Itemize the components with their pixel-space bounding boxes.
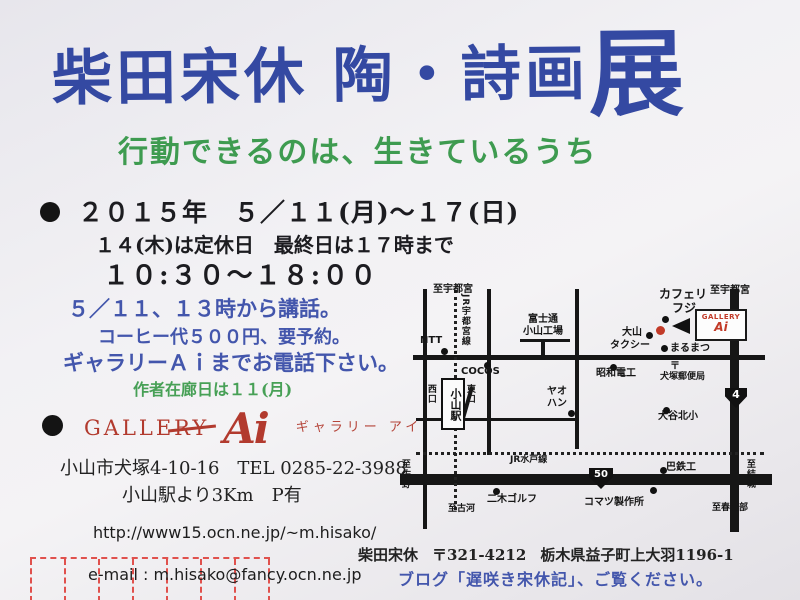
coffee-fee-note: コーヒー代５００円、要予約。	[98, 323, 350, 349]
marumatsu-dot	[661, 345, 668, 352]
map-label-yaohan-1: ヤオ	[547, 386, 567, 397]
map-label-oyama-taxi-1: 大山	[622, 327, 642, 338]
reservation-phone-note: ギャラリーＡｉまでお電話下さい。	[63, 347, 399, 377]
exhibition-dates: ２０１５年 ５／１１(月)～１７(日)	[78, 193, 519, 229]
fujitsu-sign-stem	[541, 339, 545, 358]
artist-address: 栃木県益子町上大羽1196-1	[540, 546, 733, 564]
route50-shield: 50	[589, 468, 613, 489]
yaohan-dot	[568, 410, 575, 417]
gallery-pointer-arrow	[672, 318, 690, 334]
map-label-oya-kita-school: 大谷北小	[658, 411, 698, 422]
map-label-to-utsunomiya-east: 至宇都宮	[710, 285, 750, 296]
oyama-station-box: 小山駅	[441, 378, 465, 430]
exhibition-title: 柴田宋休 陶・詩画展	[51, 23, 684, 134]
map-road-vertical-center	[575, 289, 579, 449]
jr-mito-line	[416, 452, 764, 455]
gallery-location-marker	[656, 326, 665, 335]
map-label-to-yuki: 至結城	[744, 459, 754, 489]
map-label-tomoe-tekko: 巴鉄工	[666, 462, 696, 473]
gallery-logo: GALLERYAiギャラリー アイ	[84, 404, 422, 453]
website-url: http://www15.ocn.ne.jp/~m.hisako/	[93, 523, 376, 542]
exhibition-title-main: 柴田宋休 陶・詩画	[52, 39, 590, 115]
oyama-taxi-dot	[646, 332, 653, 339]
map-label-inuzuka-post-office: 犬塚郵便局	[660, 373, 705, 383]
map-label-jr-utsunomiya-line: JR宇都宮線	[459, 294, 469, 346]
bullet-dot-schedule	[40, 202, 60, 222]
talk-event-note: ５／１１、１３時から講話。	[68, 293, 341, 323]
map-label-west-exit: 西口	[425, 384, 435, 404]
map-label-ntt: NTT	[420, 335, 442, 346]
map-road-horizontal-main	[413, 355, 765, 360]
gallery-name-katakana: ギャラリー アイ	[296, 420, 422, 435]
map-label-fuji: フジ	[672, 302, 696, 315]
map-road-horizontal-station	[416, 418, 576, 421]
map-label-to-koga: 至古河	[448, 505, 475, 515]
gallery-access-note: 小山駅より3Km P有	[122, 481, 302, 507]
closed-day-note: １４(木)は定休日 最終日は１７時まで	[95, 229, 454, 258]
ntt-dot	[441, 348, 448, 355]
access-map: 小山駅 GALLERYAi 4 50 至宇都宮 JR宇都宮線 NTT 富士通 小…	[408, 282, 770, 535]
jr-utsunomiya-line-upper	[454, 290, 457, 378]
artist-postal-code: 〒321-4212	[432, 546, 526, 564]
fujitsu-sign-underline	[520, 339, 570, 342]
opening-hours: １０:３０～１８:００	[103, 255, 378, 292]
map-label-marumatsu: まるまつ	[670, 343, 710, 354]
exhibition-title-last-char: 展	[588, 19, 684, 131]
gallery-address-phone: 小山市犬塚4-10-16 TEL 0285-22-3988	[60, 454, 407, 480]
exhibition-postcard: 柴田宋休 陶・詩画展 行動できるのは、生きているうち ２０１５年 ５／１１(月)…	[0, 0, 800, 600]
route4-shield: 4	[725, 388, 747, 408]
bullet-dot-gallery	[42, 415, 63, 436]
map-label-komatsu: コマツ製作所	[584, 497, 644, 508]
exhibition-subtitle: 行動できるのは、生きているうち	[118, 127, 597, 171]
gallery-ai-script-logo: Ai	[223, 404, 268, 453]
cafe-fuji-dot	[662, 316, 669, 323]
map-label-jr-mito-line: JR水戸線	[510, 456, 547, 466]
gallery-map-box-ai: Ai	[697, 321, 745, 333]
komatsu-dot	[650, 487, 657, 494]
map-label-fujitsu: 富士通	[528, 314, 558, 325]
map-road-vertical-west	[423, 289, 427, 529]
gallery-map-box: GALLERYAi	[695, 309, 747, 341]
map-label-to-kasukabe: 至春日部	[712, 504, 748, 514]
map-label-cafe: カフェリ	[659, 288, 707, 301]
artist-name: 柴田宋休	[358, 546, 418, 564]
map-label-niki-golf: 二木ゴルフ	[487, 494, 537, 505]
blog-announcement: ブログ「遅咲き宋休記」、ご覧ください。	[398, 566, 713, 590]
map-label-yaohan-2: ハン	[547, 398, 567, 409]
map-label-to-sano: 至佐野	[399, 459, 409, 489]
email-address: e-mail : m.hisako@fancy.ocn.ne.jp	[88, 565, 361, 584]
artist-address-line: 柴田宋休〒321-4212栃木県益子町上大羽1196-1	[358, 544, 748, 565]
jr-utsunomiya-line-lower	[454, 428, 457, 510]
map-label-oyama-plant: 小山工場	[523, 326, 563, 337]
map-label-showa-denko: 昭和電工	[596, 368, 636, 379]
map-label-cocos: COCOS	[461, 366, 500, 377]
map-label-east-exit: 東口	[464, 384, 474, 404]
map-label-oyama-taxi-2: タクシー	[610, 340, 650, 351]
artist-presence-note: 作者在廊日は１１(月)	[133, 376, 292, 400]
map-label-post-mark: 〒	[670, 361, 680, 372]
